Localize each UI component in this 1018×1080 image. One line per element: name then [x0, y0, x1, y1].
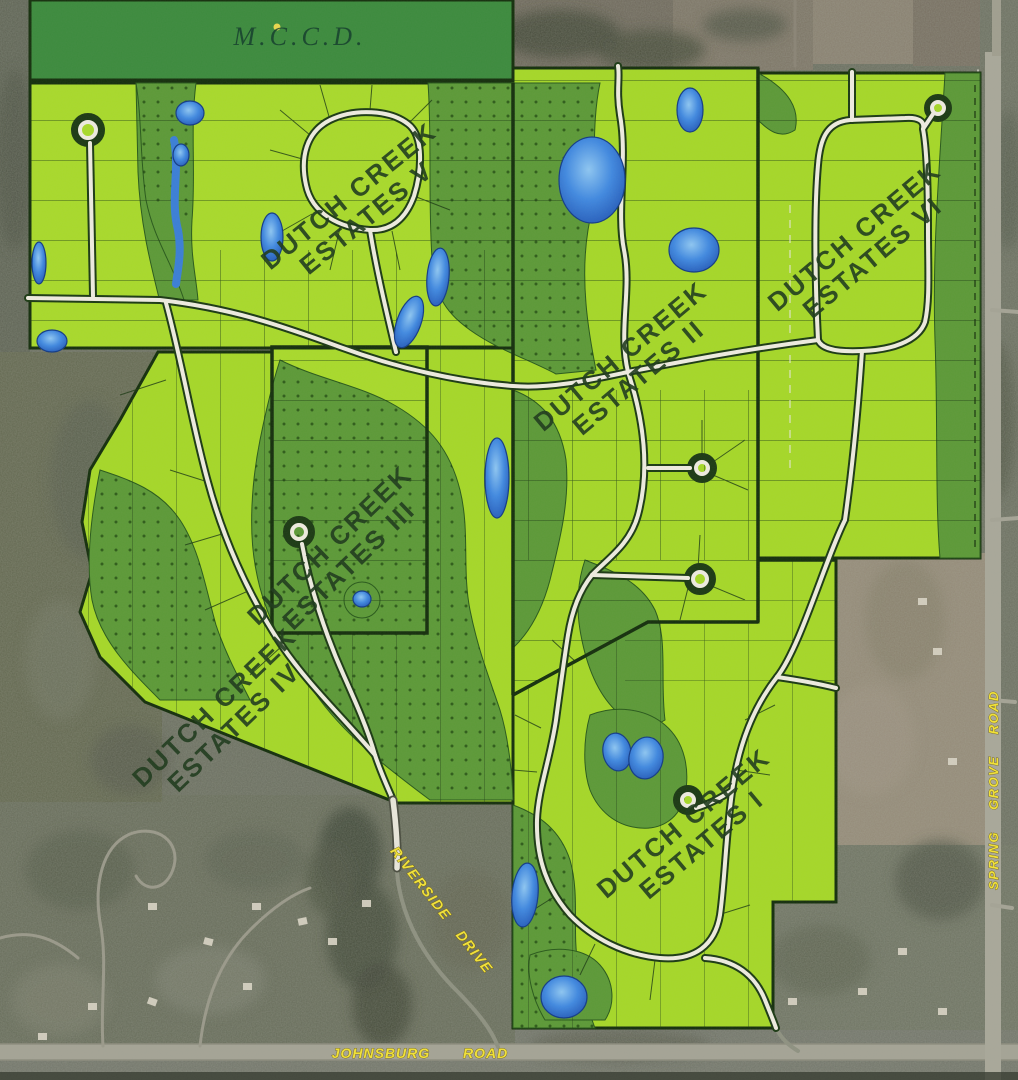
scan-edge — [0, 1072, 1018, 1080]
plat-map-screenshot: M.C.C.D. DUTCH CREEK ESTATES V DUTCH CRE… — [0, 0, 1018, 1080]
scan-grain-overlay — [0, 0, 1018, 1080]
